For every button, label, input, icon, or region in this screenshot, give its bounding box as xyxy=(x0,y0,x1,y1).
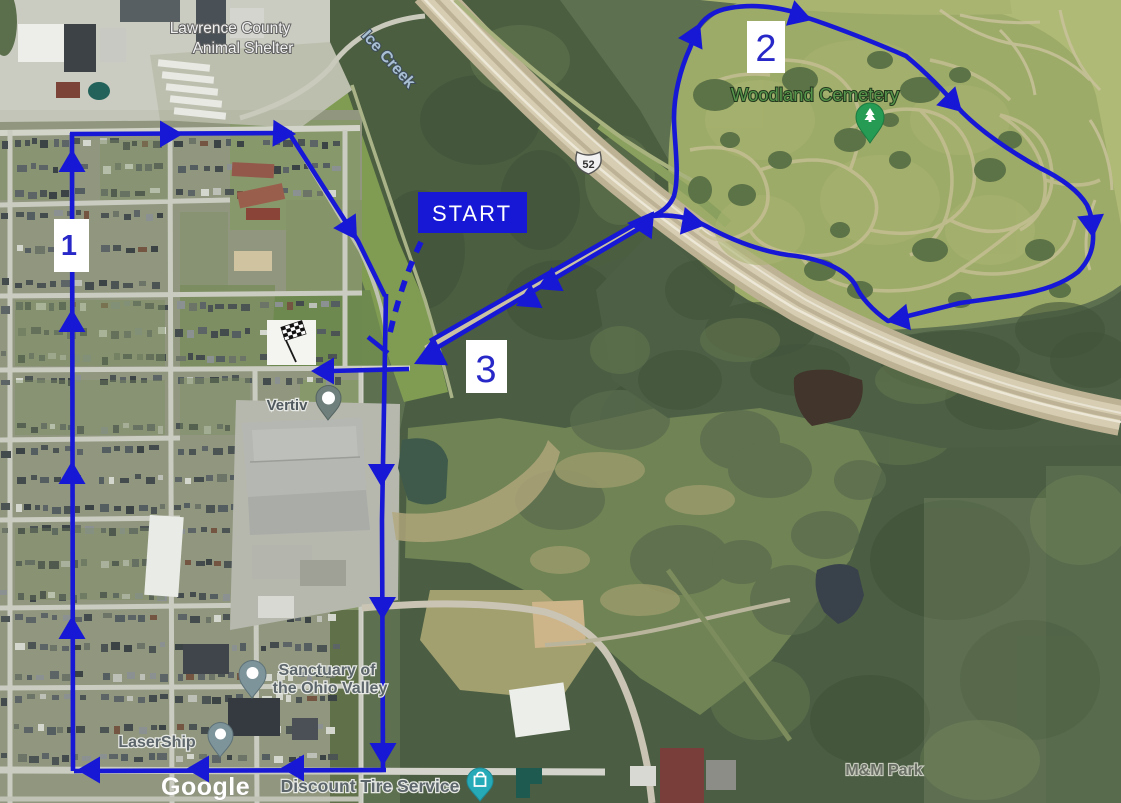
svg-text:the Ohio Valley: the Ohio Valley xyxy=(273,680,388,697)
svg-text:3: 3 xyxy=(475,349,496,391)
svg-text:Sanctuary of: Sanctuary of xyxy=(279,662,377,679)
svg-text:Lawrence County: Lawrence County xyxy=(170,20,291,37)
svg-text:LaserShip: LaserShip xyxy=(118,734,196,751)
svg-text:Google: Google xyxy=(161,773,250,801)
svg-text:Animal Shelter: Animal Shelter xyxy=(193,40,294,57)
svg-text:Discount Tire Service: Discount Tire Service xyxy=(281,776,460,796)
svg-text:START: START xyxy=(432,201,512,226)
svg-text:Vertiv: Vertiv xyxy=(267,397,309,414)
svg-text:2: 2 xyxy=(755,28,776,70)
svg-text:M&M Park: M&M Park xyxy=(845,762,922,779)
svg-text:52: 52 xyxy=(582,159,594,171)
svg-text:1: 1 xyxy=(61,230,77,262)
svg-text:Woodland Cemetery: Woodland Cemetery xyxy=(731,84,900,105)
